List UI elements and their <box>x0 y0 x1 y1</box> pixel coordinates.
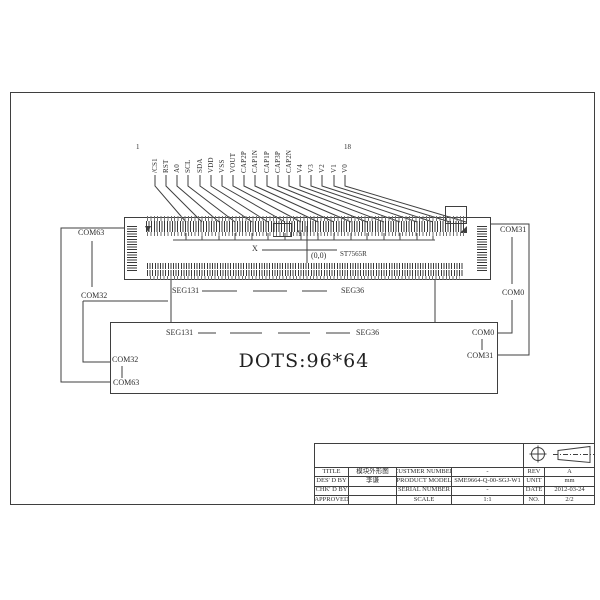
unit-label: UNIT <box>523 476 544 485</box>
pin-label-6: VDD <box>207 157 215 173</box>
top-pad-band <box>146 221 466 232</box>
rev-label: REV <box>523 467 544 476</box>
pin-label-10: CAP1N <box>251 150 259 173</box>
y-axis-label: Y <box>297 230 303 238</box>
serial-number-value: - <box>451 486 523 495</box>
seg-pad-ticks <box>150 276 460 280</box>
page-number-value: 2/2 <box>544 495 594 504</box>
title-value: 模块外形图 <box>348 467 396 476</box>
title-block: TITLE 模块外形图 CUSTMER NUMBER - REV A DES' … <box>314 443 595 505</box>
projection-symbol-cell <box>523 444 594 467</box>
panel-seg36-label: SEG36 <box>356 329 379 337</box>
pin-label-5: SDA <box>196 158 204 173</box>
pin-number-last: 18 <box>344 144 351 151</box>
approved-value <box>348 495 396 504</box>
pin-number-first: 1 <box>136 144 140 151</box>
seg36-label: SEG36 <box>341 287 364 295</box>
customer-number-label: CUSTMER NUMBER <box>396 467 451 476</box>
controller-label: ST7565R <box>340 251 367 258</box>
approved-label: APPROVED <box>315 495 348 504</box>
pin-label-16: V2 <box>318 164 326 173</box>
pin-label-13: CAP2N <box>285 150 293 173</box>
origin-label: (0,0) <box>311 252 326 260</box>
designed-by-value: 李谦 <box>348 476 396 485</box>
panel-seg131-label: SEG131 <box>166 329 193 337</box>
panel-com0-label: COM0 <box>472 329 494 337</box>
schematic-linework <box>0 0 600 600</box>
left-com-band <box>127 224 137 271</box>
pin-label-11: CAP1P <box>263 151 271 173</box>
com0-label: COM0 <box>502 289 524 297</box>
scale-label: SCALE <box>396 495 451 504</box>
panel-com63-label: COM63 <box>113 379 139 387</box>
checked-by-label: CHK' D BY <box>315 486 348 495</box>
pin-label-2: RST <box>162 160 170 173</box>
unit-value: mm <box>544 476 594 485</box>
customer-number-value: - <box>451 467 523 476</box>
dots-resolution-label: DOTS:96*64 <box>110 350 498 372</box>
date-label: DATE <box>523 486 544 495</box>
product-model-label: PRODUCT MODEL <box>396 476 451 485</box>
pin-label-18: V0 <box>341 164 349 173</box>
com32-label: COM32 <box>81 292 107 300</box>
title-label: TITLE <box>315 467 348 476</box>
pin-label-4: SCL <box>184 160 192 173</box>
com31-label: COM31 <box>500 226 526 234</box>
right-com-band <box>477 224 487 271</box>
product-model-value: SME9664-Q-00-SGJ-W1 <box>451 476 523 485</box>
drawing-sheet: { "page": { "background": "#ffffff", "li… <box>0 0 600 600</box>
title-block-empty-cell <box>315 444 523 467</box>
pin-label-17: V1 <box>330 164 338 173</box>
pin-label-1: /CS1 <box>151 158 159 173</box>
pin-label-9: CAP2P <box>240 151 248 173</box>
seg131-label: SEG131 <box>172 287 199 295</box>
pin-label-8: VOUT <box>229 153 237 173</box>
seg-pad-band-upper <box>147 263 463 269</box>
date-value: 2012-03-24 <box>544 486 594 495</box>
checked-by-value <box>348 486 396 495</box>
pin-label-14: V4 <box>296 164 304 173</box>
com63-label: COM63 <box>78 229 104 237</box>
com0-trace <box>498 300 512 333</box>
serial-number-label: SERIAL NUMBER <box>396 486 451 495</box>
scale-value: 1:1 <box>451 495 523 504</box>
designed-by-label: DES' D BY <box>315 476 348 485</box>
rev-value: A <box>544 467 594 476</box>
x-axis-label: X <box>252 245 258 253</box>
top-pad-ticks-lower <box>147 232 465 236</box>
pin-leader-lines <box>155 175 466 222</box>
pin-label-3: A0 <box>173 164 181 173</box>
page-number-label: NO. <box>523 495 544 504</box>
pin-label-15: V3 <box>307 164 315 173</box>
pin-label-7: VSS <box>218 160 226 173</box>
pin-label-12: CAP3P <box>274 151 282 173</box>
